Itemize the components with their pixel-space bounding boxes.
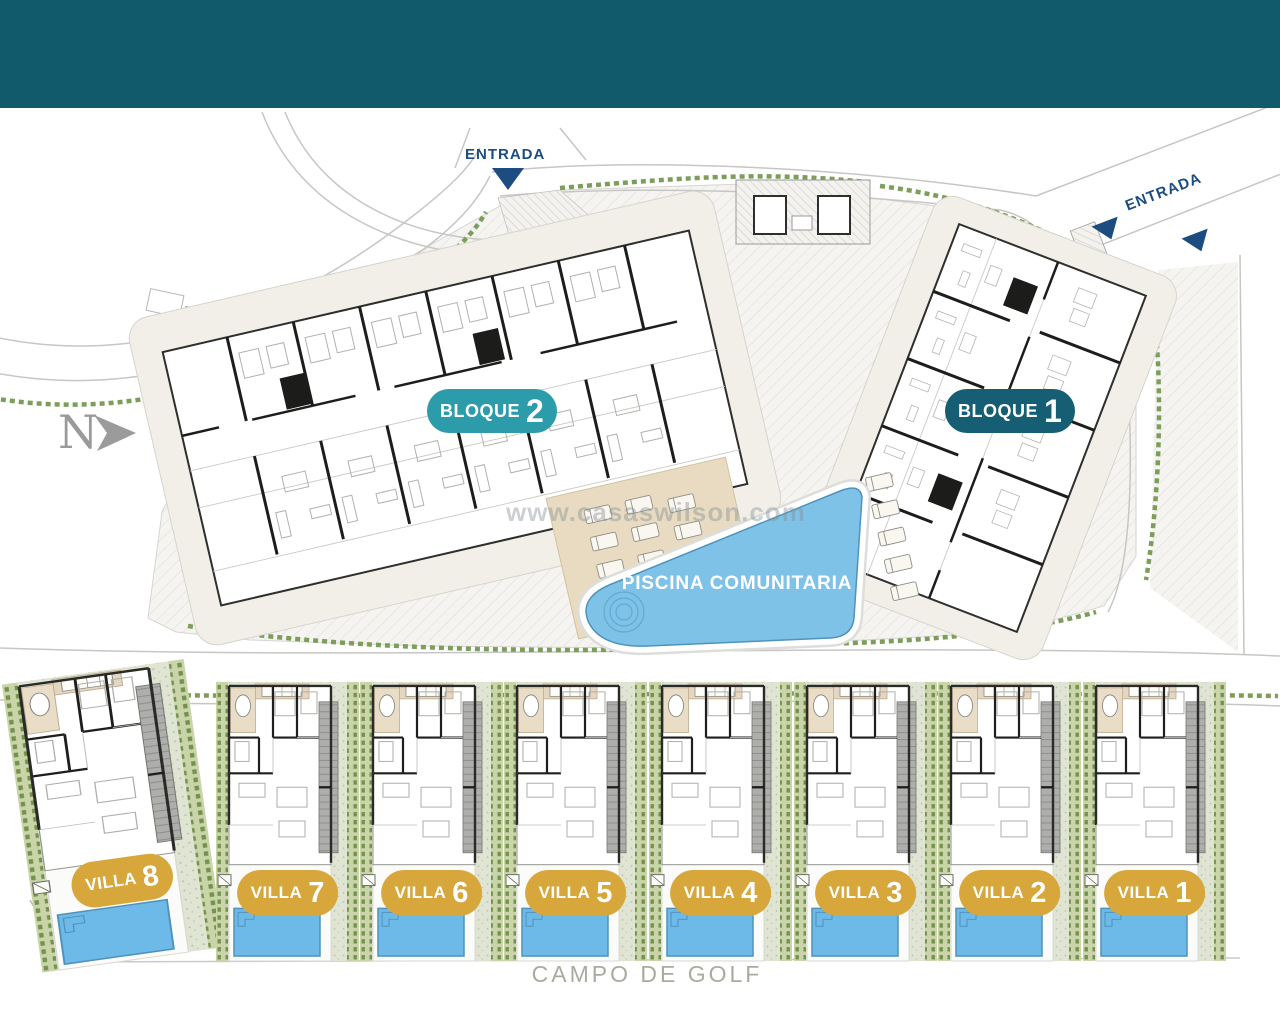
north-label: N [58,409,98,455]
villa-1-badge: VILLA 1 [1104,870,1206,916]
villa-3-badge: VILLA 3 [815,870,917,916]
block-badge-number: 1 [1044,395,1062,427]
villa-badge-number: 6 [452,879,468,908]
villa-badge-number: 7 [308,879,324,908]
villa-5-plot: VILLA 5 [503,676,648,964]
villa-3-plot: VILLA 3 [793,676,938,964]
villa-6-badge: VILLA 6 [381,870,483,916]
utility-building [736,180,870,244]
villa-2-floorplan [937,676,1082,964]
villa-badge-label: VILLA [829,883,881,903]
entrance-label-left: ENTRADA [465,146,545,163]
villa-badge-label: VILLA [1118,883,1170,903]
block-1-badge: BLOQUE 1 [945,389,1075,433]
villa-4-floorplan [648,676,793,964]
villa-badge-number: 3 [886,879,902,908]
villa-7-badge: VILLA 7 [237,870,339,916]
block-badge-label: BLOQUE [958,401,1038,422]
villa-2-badge: VILLA 2 [959,870,1061,916]
villa-badge-label: VILLA [84,869,138,896]
villa-badge-label: VILLA [395,883,447,903]
north-arrow-icon [94,412,140,456]
villa-badge-label: VILLA [973,883,1025,903]
villa-2-plot: VILLA 2 [937,676,1082,964]
villa-badge-number: 1 [1175,879,1191,908]
site-plan: ENTRADA ENTRADA N BLOQUE 2 BLOQUE 1 PISC… [0,0,1280,1024]
villa-badge-number: 4 [741,879,757,908]
villa-badge-label: VILLA [684,883,736,903]
villa-badge-number: 8 [141,861,161,892]
villa-5-floorplan [503,676,648,964]
pool-label: PISCINA COMUNITARIA [612,573,862,595]
villa-1-plot: VILLA 1 [1082,676,1227,964]
block-badge-label: BLOQUE [440,401,520,422]
villa-6-floorplan [359,676,504,964]
block-2-badge: BLOQUE 2 [427,389,557,433]
villa-badge-number: 5 [596,879,612,908]
villa-6-plot: VILLA 6 [359,676,504,964]
villa-7-floorplan [215,676,360,964]
villa-4-plot: VILLA 4 [648,676,793,964]
villa-badge-label: VILLA [539,883,591,903]
watermark: www.casaswilson.com [506,497,806,528]
entrance-arrow-left-icon [492,168,524,190]
villa-3-floorplan [793,676,938,964]
villa-badge-number: 2 [1030,879,1046,908]
north-indicator: N [58,408,140,456]
villa-1-floorplan [1082,676,1227,964]
header-band [0,0,1280,108]
block-badge-number: 2 [526,395,544,427]
villa-4-badge: VILLA 4 [670,870,772,916]
villa-7-plot: VILLA 7 [215,676,360,964]
villa-5-badge: VILLA 5 [525,870,627,916]
golf-course-label: CAMPO DE GOLF [467,961,827,988]
villa-badge-label: VILLA [251,883,303,903]
